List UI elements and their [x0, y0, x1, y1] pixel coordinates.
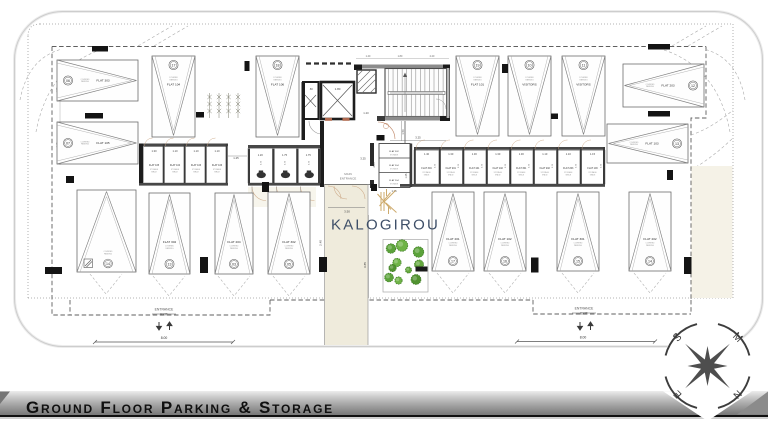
- svg-text:FLAT 204: FLAT 204: [389, 179, 399, 182]
- svg-text:1.40: 1.40: [366, 55, 371, 58]
- svg-text:1.40: 1.40: [424, 152, 430, 156]
- svg-text:ENTRANCE: ENTRANCE: [575, 307, 594, 311]
- svg-text:FLAT 204: FLAT 204: [227, 240, 241, 244]
- svg-text:2.05: 2.05: [372, 162, 376, 168]
- svg-text:FLAT 101: FLAT 101: [469, 167, 480, 170]
- svg-text:1.30: 1.30: [151, 149, 157, 153]
- svg-text:8.00: 8.00: [161, 336, 168, 340]
- svg-text:SPACE: SPACE: [448, 174, 454, 177]
- svg-text:13: 13: [168, 262, 172, 266]
- svg-text:FLAT 304: FLAT 304: [163, 240, 177, 244]
- svg-text:1.20: 1.20: [258, 153, 264, 157]
- svg-text:FLAT 103: FLAT 103: [645, 142, 659, 146]
- svg-text:SPACE: SPACE: [172, 171, 178, 174]
- svg-text:11: 11: [582, 63, 586, 67]
- svg-text:1.30: 1.30: [519, 152, 525, 156]
- svg-text:FLAT 202: FLAT 202: [540, 167, 551, 170]
- svg-text:FLAT 106: FLAT 106: [271, 83, 285, 87]
- svg-text:1.30: 1.30: [448, 152, 454, 156]
- svg-text:1.20: 1.20: [363, 111, 369, 115]
- svg-text:1.75: 1.75: [282, 153, 288, 157]
- svg-text:1.10: 1.10: [214, 149, 220, 153]
- svg-text:05: 05: [287, 262, 291, 266]
- svg-text:PARKING: PARKING: [166, 247, 175, 250]
- svg-text:1.15: 1.15: [590, 152, 596, 156]
- svg-text:STORAGE: STORAGE: [390, 154, 399, 157]
- svg-text:SPACE: SPACE: [565, 174, 571, 177]
- svg-text:13: 13: [675, 142, 679, 146]
- svg-text:15: 15: [576, 259, 580, 263]
- svg-text:FLAT 304: FLAT 304: [421, 167, 432, 170]
- svg-text:1.80: 1.80: [335, 87, 341, 91]
- svg-text:1.30: 1.30: [495, 152, 501, 156]
- svg-text:2.20: 2.20: [430, 55, 435, 58]
- svg-text:1.30: 1.30: [472, 152, 478, 156]
- svg-text:SPACE: SPACE: [214, 171, 220, 174]
- svg-text:FLAT 102: FLAT 102: [493, 167, 504, 170]
- svg-text:PARKING: PARKING: [81, 80, 90, 83]
- svg-text:18: 18: [276, 63, 280, 67]
- svg-text:PARKING: PARKING: [501, 244, 510, 247]
- svg-text:16: 16: [503, 259, 507, 263]
- svg-text:FLAT 303: FLAT 303: [96, 79, 110, 83]
- svg-text:1.10: 1.10: [172, 149, 178, 153]
- svg-text:SPACE: SPACE: [193, 171, 199, 174]
- svg-text:1.75: 1.75: [306, 153, 312, 157]
- svg-text:ENTRANCE: ENTRANCE: [155, 308, 174, 312]
- svg-text:STORAGE: STORAGE: [390, 168, 399, 171]
- svg-text:EXIT: EXIT: [580, 312, 588, 316]
- svg-text:.80: .80: [309, 87, 313, 91]
- svg-text:PARKING: PARKING: [104, 253, 113, 256]
- svg-text:1.10: 1.10: [542, 152, 548, 156]
- svg-text:PARKING: PARKING: [474, 78, 483, 81]
- svg-text:PARKING: PARKING: [646, 85, 655, 88]
- svg-text:PARKING: PARKING: [274, 78, 283, 81]
- svg-text:1.25: 1.25: [233, 156, 239, 160]
- svg-text:FLAT 105: FLAT 105: [149, 164, 160, 167]
- svg-text:FLAT 106: FLAT 106: [212, 164, 223, 167]
- svg-text:06: 06: [66, 79, 70, 83]
- svg-text:FLAT 203: FLAT 203: [563, 167, 574, 170]
- svg-text:SPACE: SPACE: [471, 174, 477, 177]
- svg-text:3.25: 3.25: [415, 136, 421, 140]
- svg-text:FLAT 201: FLAT 201: [446, 237, 460, 241]
- svg-text:FLAT 301: FLAT 301: [516, 167, 527, 170]
- svg-text:9.85: 9.85: [363, 262, 367, 268]
- svg-text:10: 10: [528, 63, 532, 67]
- svg-text:3.25: 3.25: [360, 157, 366, 161]
- svg-text:14: 14: [106, 262, 110, 266]
- svg-text:PARKING: PARKING: [170, 78, 179, 81]
- svg-text:PARKING: PARKING: [526, 78, 535, 81]
- svg-text:1.25: 1.25: [405, 173, 408, 178]
- svg-text:PARKING: PARKING: [580, 78, 589, 81]
- svg-text:2.40: 2.40: [319, 240, 323, 246]
- svg-text:VISITORS: VISITORS: [576, 83, 590, 87]
- svg-text:FLAT 105: FLAT 105: [96, 141, 110, 145]
- svg-text:FLAT 301: FLAT 301: [571, 237, 585, 241]
- svg-text:PARKING: PARKING: [574, 244, 583, 247]
- svg-text:FLAT 101: FLAT 101: [471, 83, 485, 87]
- svg-text:FLAT 302: FLAT 302: [282, 240, 296, 244]
- svg-text:PARKING: PARKING: [285, 247, 294, 250]
- svg-text:FLAT 201: FLAT 201: [446, 167, 457, 170]
- svg-text:1.10: 1.10: [566, 152, 572, 156]
- svg-text:PARKING: PARKING: [81, 143, 90, 146]
- svg-text:EXIT: EXIT: [160, 313, 168, 317]
- svg-text:8.00: 8.00: [580, 336, 587, 340]
- svg-text:VISITORS: VISITORS: [522, 83, 536, 87]
- svg-text:03: 03: [232, 262, 236, 266]
- svg-text:FLAT 104: FLAT 104: [170, 164, 181, 167]
- svg-text:FLAT 302: FLAT 302: [389, 150, 399, 153]
- svg-text:FLAT 304: FLAT 304: [389, 164, 399, 167]
- svg-text:SPACE: SPACE: [151, 171, 157, 174]
- svg-text:PARKING: PARKING: [630, 143, 639, 146]
- svg-text:PARKING: PARKING: [230, 247, 239, 250]
- svg-text:STORAGE: STORAGE: [390, 183, 399, 186]
- svg-text:KALOGIROU: KALOGIROU: [331, 217, 440, 234]
- svg-text:19: 19: [476, 63, 480, 67]
- svg-text:17: 17: [451, 259, 455, 263]
- svg-text:ENTRANCE: ENTRANCE: [340, 177, 357, 181]
- svg-text:FLAT 104: FLAT 104: [167, 83, 181, 87]
- svg-text:12: 12: [691, 84, 695, 88]
- svg-text:FLAT 202: FLAT 202: [643, 237, 657, 241]
- svg-text:07: 07: [66, 141, 70, 145]
- svg-text:FLAT 103: FLAT 103: [191, 164, 202, 167]
- svg-text:PARKING: PARKING: [646, 244, 655, 247]
- svg-text:FLAT 102: FLAT 102: [498, 237, 512, 241]
- svg-text:SPACE: SPACE: [518, 174, 524, 177]
- svg-text:17: 17: [172, 63, 176, 67]
- svg-text:SPACE: SPACE: [495, 174, 501, 177]
- svg-text:14: 14: [648, 259, 652, 263]
- svg-text:MAIN: MAIN: [344, 172, 352, 176]
- svg-text:1.80: 1.80: [398, 55, 403, 58]
- svg-text:SPACE: SPACE: [424, 174, 430, 177]
- svg-text:1.10: 1.10: [193, 149, 199, 153]
- svg-text:SPACE: SPACE: [590, 174, 596, 177]
- svg-text:SPACE: SPACE: [542, 174, 548, 177]
- svg-text:PARKING: PARKING: [449, 244, 458, 247]
- svg-text:3.50: 3.50: [344, 210, 350, 214]
- svg-text:FLAT 103: FLAT 103: [587, 167, 598, 170]
- svg-text:FLAT 203: FLAT 203: [661, 84, 675, 88]
